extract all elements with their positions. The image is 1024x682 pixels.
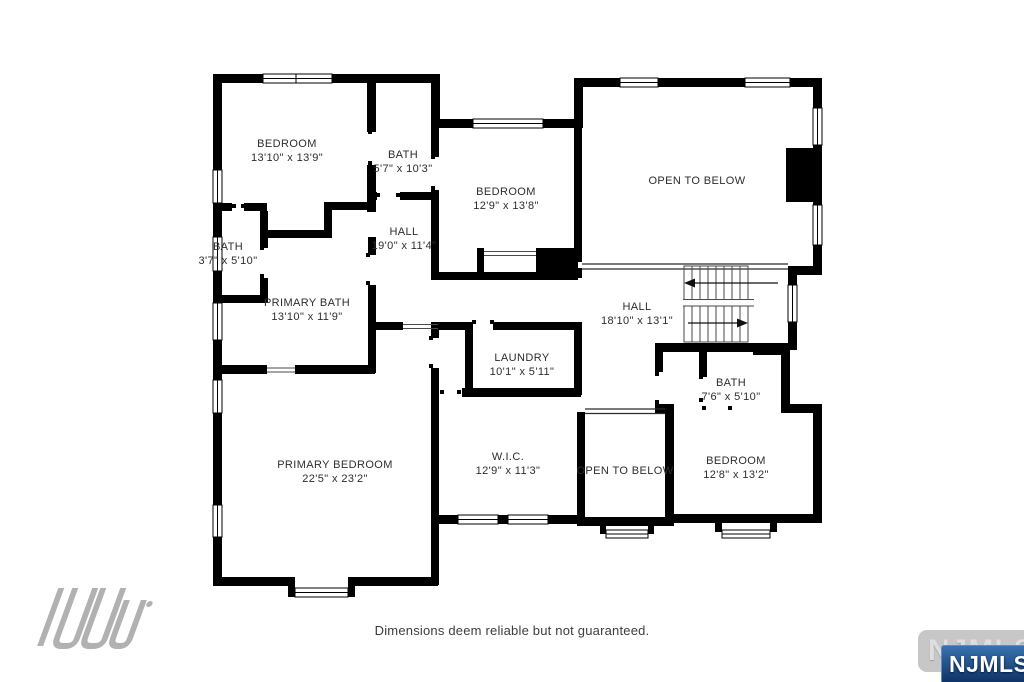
room-dims-bath-left: 3'7" x 5'10" xyxy=(198,255,257,267)
room-label-primary-bath: PRIMARY BATH xyxy=(264,297,350,309)
room-label-open-to-below-top: OPEN TO BELOW xyxy=(648,175,745,187)
room-dims-hall-upper: 19'0" x 11'4" xyxy=(372,240,437,252)
window xyxy=(813,108,822,145)
room-dims-walk-in-closet: 12'9" x 11'3" xyxy=(476,465,541,477)
window xyxy=(263,74,332,83)
fireplace-block xyxy=(786,148,813,202)
room-label-bath-left: BATH xyxy=(213,241,243,253)
room-label-bedroom-bottom-right: BEDROOM xyxy=(706,455,766,467)
window xyxy=(620,78,658,87)
floorplan-drawing: BEDROOM13'10" x 13'9"BATH5'7" x 10'3"BED… xyxy=(0,0,1024,682)
room-label-bedroom-top-middle: BEDROOM xyxy=(476,186,536,198)
room-label-bedroom-top-left: BEDROOM xyxy=(257,138,317,150)
room-dims-bedroom-top-middle: 12'9" x 13'8" xyxy=(473,200,539,212)
room-dims-bedroom-bottom-right: 12'8" x 13'2" xyxy=(703,469,769,481)
window xyxy=(813,205,822,245)
floorplan-page: BEDROOM13'10" x 13'9"BATH5'7" x 10'3"BED… xyxy=(0,0,1024,682)
njmls-logo-badge: NJMLS xyxy=(941,645,1024,682)
room-label-hall-upper: HALL xyxy=(389,226,418,238)
window xyxy=(213,303,222,340)
room-label-walk-in-closet: W.I.C. xyxy=(492,451,524,463)
room-label-bath-right: BATH xyxy=(716,377,746,389)
window xyxy=(473,119,543,128)
window xyxy=(213,505,222,537)
room-dims-bath-top: 5'7" x 10'3" xyxy=(373,163,432,175)
room-labels: BEDROOM13'10" x 13'9"BATH5'7" x 10'3"BED… xyxy=(198,138,768,485)
window xyxy=(788,285,797,322)
room-dims-laundry: 10'1" x 5'11" xyxy=(490,366,555,378)
room-label-laundry: LAUNDRY xyxy=(494,352,549,364)
window xyxy=(213,380,222,413)
room-label-open-to-below-bottom: OPEN TO BELOW xyxy=(576,465,673,477)
room-label-primary-bedroom: PRIMARY BEDROOM xyxy=(277,459,393,471)
window xyxy=(295,588,348,597)
room-dims-bedroom-top-left: 13'10" x 13'9" xyxy=(251,152,323,164)
window xyxy=(213,170,222,203)
njmls-badge-label: NJMLS xyxy=(949,651,1024,677)
window xyxy=(722,530,770,538)
window xyxy=(458,515,498,524)
room-dims-primary-bath: 13'10" x 11'9" xyxy=(271,311,342,323)
disclaimer-text: Dimensions deem reliable but not guarant… xyxy=(375,623,650,638)
room-label-bath-top: BATH xyxy=(388,149,418,161)
room-dims-hall-main: 18'10" x 13'1" xyxy=(601,315,673,327)
window xyxy=(745,78,790,87)
room-dims-bath-right: 7'6" x 5'10" xyxy=(701,391,760,403)
staircase xyxy=(683,266,778,342)
window xyxy=(606,530,648,538)
floorplan-company-logo-icon xyxy=(40,588,158,646)
window xyxy=(508,515,548,524)
room-dims-primary-bedroom: 22'5" x 23'2" xyxy=(302,473,368,485)
room-label-hall-main: HALL xyxy=(622,301,651,313)
